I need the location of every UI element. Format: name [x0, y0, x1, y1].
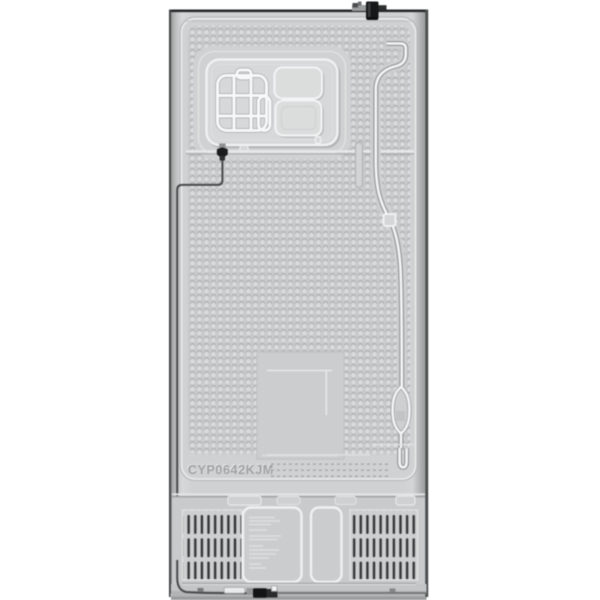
svg-text:CYP0642KJM: CYP0642KJM: [188, 463, 274, 477]
